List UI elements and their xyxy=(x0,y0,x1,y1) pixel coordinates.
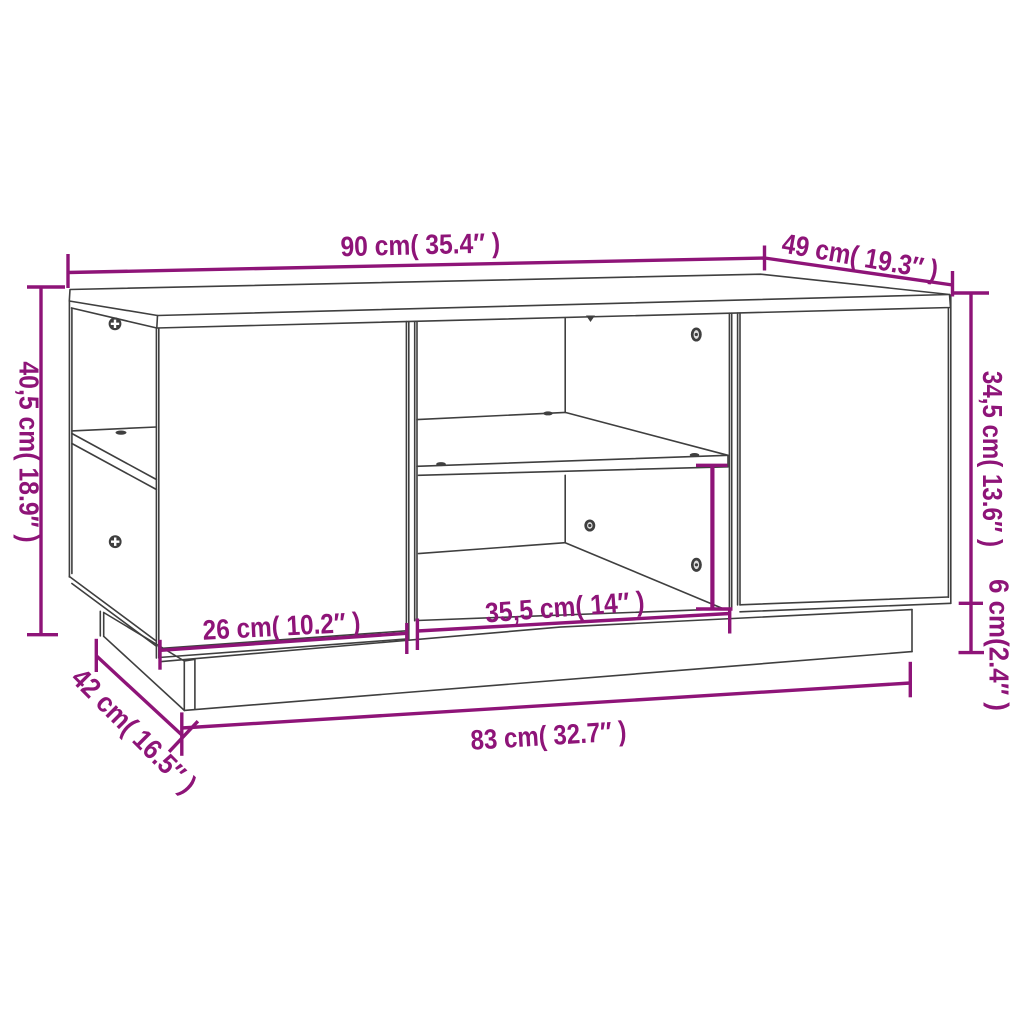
svg-text:6 cm(2.4″ ): 6 cm(2.4″ ) xyxy=(983,579,1014,711)
svg-text:34,5 cm( 13.6″ ): 34,5 cm( 13.6″ ) xyxy=(977,371,1009,547)
svg-text:90 cm( 35.4″ ): 90 cm( 35.4″ ) xyxy=(340,227,500,263)
svg-text:40,5 cm( 18.9″ ): 40,5 cm( 18.9″ ) xyxy=(13,361,45,542)
